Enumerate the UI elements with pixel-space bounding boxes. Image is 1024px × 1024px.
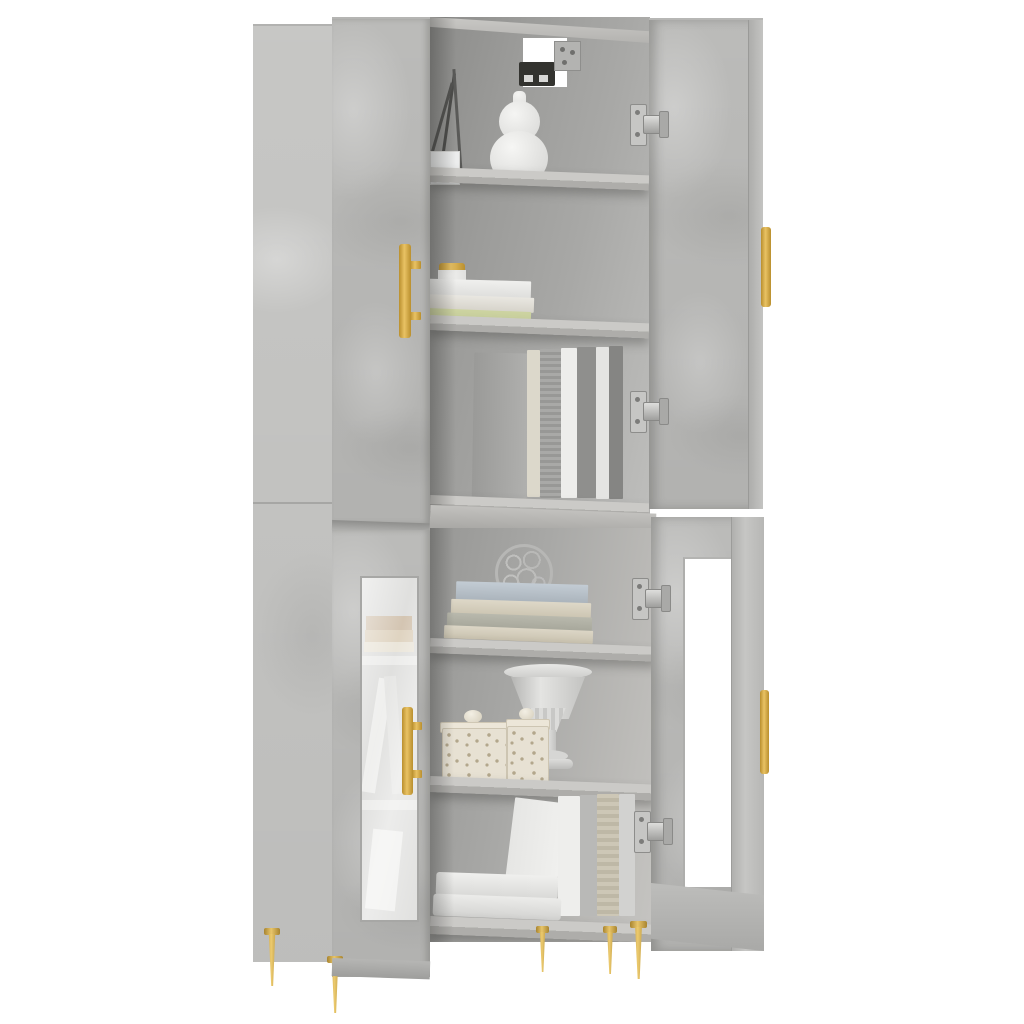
product-photo: Tall concrete-grey highboard storage cab… [0,0,1024,1024]
shelf-lower-1 [430,638,657,662]
leg-front-left [264,928,280,986]
handle-upper-right-door [761,227,771,307]
handle-upper-left-door [399,244,425,338]
upper-interior [430,17,650,517]
lower-right-door-glass [683,557,733,887]
interior-left-shadow [430,17,456,517]
hinge-lower-door-top [632,577,670,619]
upper-right-door [649,18,763,509]
shelf-upper-2 [430,315,649,338]
left-side-panel [253,24,334,962]
cable-hole [523,38,567,87]
shelf-upper-1 [430,167,649,190]
left-panel-seam [253,502,332,504]
handle-lower-right-door [760,690,769,774]
leg-door-corner [630,921,647,979]
interior-lower-left-shadow [430,528,454,942]
bracket-plate [554,41,581,71]
carved-box-small [507,708,547,786]
leg-back-center [536,926,549,972]
handle-lower-left-door [402,707,426,795]
front-bottom-edge [332,958,431,979]
wall-bracket [519,62,555,86]
leg-front-center [603,926,617,974]
hinge-lower-door-bottom [634,810,672,852]
lower-interior [430,528,658,942]
hinge-upper-door-bottom [630,390,668,432]
hinge-upper-door-top [630,103,668,145]
